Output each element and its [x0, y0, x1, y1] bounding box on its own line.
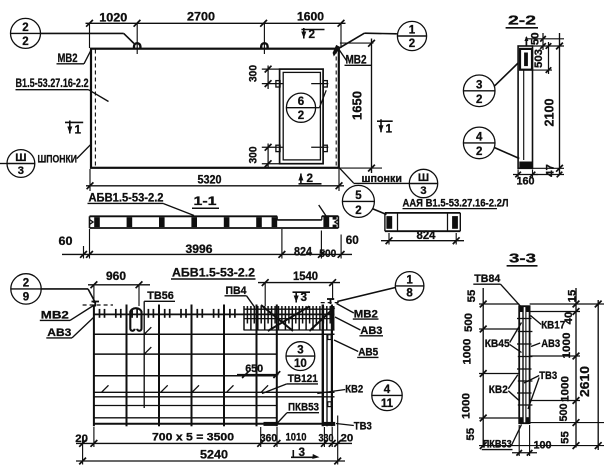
svg-text:300: 300	[248, 147, 260, 164]
svg-text:3: 3	[297, 345, 303, 357]
svg-text:9: 9	[23, 292, 29, 304]
svg-text:3: 3	[299, 446, 306, 459]
svg-text:500: 500	[463, 313, 475, 332]
svg-text:10: 10	[294, 358, 307, 370]
svg-text:2-2: 2-2	[508, 12, 536, 27]
svg-text:4: 4	[476, 131, 483, 143]
svg-text:60: 60	[59, 235, 74, 248]
svg-text:2: 2	[409, 38, 415, 50]
svg-text:824: 824	[417, 229, 436, 242]
svg-text:ШПОНКИ: ШПОНКИ	[38, 154, 78, 166]
svg-text:1650: 1650	[351, 91, 365, 120]
svg-text:3: 3	[18, 165, 24, 177]
svg-text:1: 1	[75, 123, 82, 136]
svg-text:6: 6	[298, 96, 304, 108]
svg-text:АВ3: АВ3	[541, 338, 560, 350]
svg-text:3: 3	[301, 291, 308, 304]
svg-text:В1.5-53.27.16-2.2: В1.5-53.27.16-2.2	[16, 77, 89, 90]
svg-text:55: 55	[465, 428, 477, 441]
svg-text:2: 2	[476, 94, 482, 106]
svg-text:2100: 2100	[543, 99, 557, 127]
svg-text:15: 15	[567, 290, 579, 303]
svg-text:8: 8	[406, 288, 413, 300]
svg-text:11: 11	[381, 398, 394, 410]
svg-text:330: 330	[319, 433, 334, 445]
svg-text:60: 60	[346, 234, 359, 247]
svg-text:АБВ1.5-53-2.2: АБВ1.5-53-2.2	[89, 191, 164, 204]
svg-text:503: 503	[533, 49, 545, 68]
svg-text:ТВ121: ТВ121	[288, 373, 318, 385]
svg-text:КВ2: КВ2	[489, 384, 508, 396]
svg-text:160: 160	[517, 176, 535, 188]
svg-text:2: 2	[22, 22, 28, 34]
svg-text:1-1: 1-1	[194, 194, 217, 208]
svg-text:20: 20	[341, 433, 354, 445]
svg-text:КВ17: КВ17	[541, 320, 565, 332]
svg-text:1: 1	[409, 25, 416, 37]
svg-text:1: 1	[386, 123, 393, 136]
svg-text:40: 40	[563, 312, 575, 325]
svg-text:1010: 1010	[286, 432, 307, 444]
svg-text:ПВ4: ПВ4	[226, 285, 248, 297]
svg-text:2: 2	[309, 28, 316, 41]
svg-text:1000: 1000	[561, 333, 573, 359]
svg-text:2: 2	[476, 146, 482, 158]
svg-text:3-3: 3-3	[509, 251, 536, 266]
svg-text:3996: 3996	[186, 243, 214, 256]
svg-text:ПКВ53: ПКВ53	[288, 402, 319, 414]
svg-text:50: 50	[529, 32, 541, 45]
svg-text:2: 2	[23, 277, 29, 289]
svg-text:2610: 2610	[578, 366, 592, 397]
svg-text:2: 2	[298, 110, 304, 122]
svg-text:МВ2: МВ2	[346, 54, 367, 67]
svg-text:824: 824	[294, 245, 312, 258]
svg-text:2: 2	[355, 205, 361, 217]
svg-text:ААЯ В1.5-53.27.16-2.2Л: ААЯ В1.5-53.27.16-2.2Л	[403, 198, 509, 210]
svg-text:ТВ84: ТВ84	[474, 273, 501, 285]
svg-text:5: 5	[355, 190, 362, 202]
svg-text:Ш: Ш	[418, 172, 429, 184]
svg-text:3: 3	[476, 79, 482, 91]
svg-text:500: 500	[319, 248, 336, 260]
svg-text:АБВ1.5-53-2.2: АБВ1.5-53-2.2	[172, 266, 255, 280]
svg-text:4: 4	[384, 384, 391, 396]
svg-text:2: 2	[307, 172, 314, 185]
svg-text:ТВ56: ТВ56	[147, 290, 174, 302]
svg-text:5320: 5320	[198, 174, 222, 187]
svg-text:1000: 1000	[559, 376, 571, 402]
svg-text:1540: 1540	[293, 270, 318, 283]
svg-text:1000: 1000	[460, 393, 472, 419]
svg-text:3: 3	[420, 185, 426, 197]
svg-text:КВ2: КВ2	[345, 384, 363, 396]
svg-text:2700: 2700	[187, 11, 216, 24]
svg-text:360: 360	[260, 433, 277, 445]
svg-text:20: 20	[75, 433, 88, 445]
svg-text:1000: 1000	[461, 339, 473, 365]
svg-text:1: 1	[406, 274, 413, 286]
svg-text:1020: 1020	[99, 12, 128, 25]
svg-text:1600: 1600	[297, 11, 325, 24]
svg-text:700 х 5 = 3500: 700 х 5 = 3500	[152, 432, 234, 444]
svg-text:2: 2	[22, 36, 28, 48]
svg-text:55: 55	[466, 290, 478, 303]
svg-text:ТВ3: ТВ3	[539, 370, 557, 382]
svg-text:ПКВ53: ПКВ53	[483, 439, 512, 451]
svg-text:100: 100	[534, 440, 552, 452]
svg-text:300: 300	[248, 65, 260, 82]
svg-text:55: 55	[559, 431, 571, 444]
svg-text:КВ45: КВ45	[485, 338, 510, 350]
svg-text:500: 500	[558, 404, 570, 422]
svg-text:5240: 5240	[200, 447, 228, 461]
svg-text:МВ2: МВ2	[58, 52, 78, 65]
svg-text:Ш: Ш	[15, 152, 26, 164]
svg-text:960: 960	[106, 270, 126, 283]
svg-text:ТВ3: ТВ3	[354, 421, 372, 433]
